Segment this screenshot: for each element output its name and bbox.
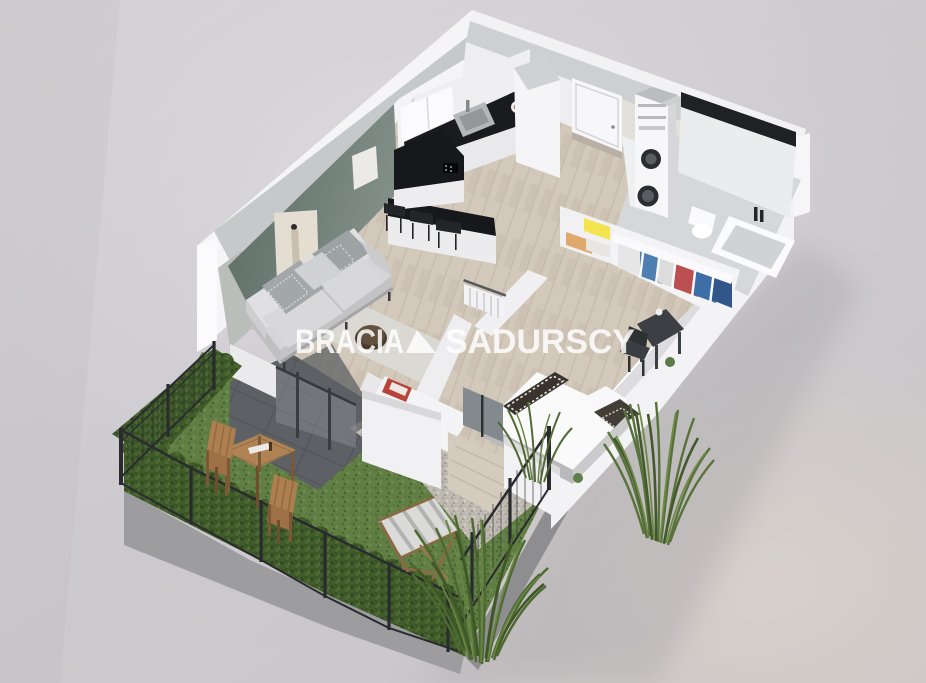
- svg-text:SADURSCY: SADURSCY: [445, 323, 635, 361]
- svg-text:BRACIA: BRACIA: [295, 323, 404, 361]
